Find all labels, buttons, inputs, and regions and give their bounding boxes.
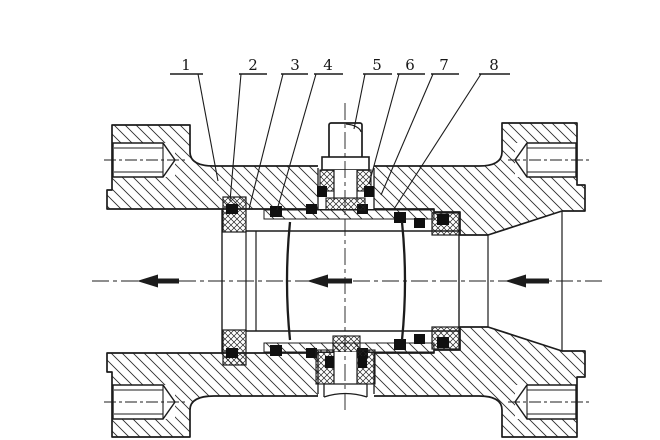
callout-number-3: 3 (290, 56, 300, 74)
trunnion-seal-right (358, 356, 367, 368)
callout-number-6: 6 (405, 56, 415, 74)
seat-carrier-plate-top (264, 210, 434, 219)
stem-packing-left (317, 186, 327, 197)
callout-number-1: 1 (181, 56, 191, 74)
callout-number-2: 2 (248, 56, 258, 74)
technical-drawing-canvas: 12345678 (0, 0, 660, 440)
callout-number-8: 8 (489, 56, 499, 74)
seat-seal-left-top (226, 204, 238, 214)
ball-valve-cross-section: 12345678 (0, 0, 660, 440)
stem-shaft (329, 123, 362, 158)
stem-packing-right (364, 186, 374, 197)
trunnion-assembly (316, 350, 375, 397)
bottom-plug (324, 384, 367, 397)
seat-seal-right-bottom (437, 337, 449, 348)
callout-number-4: 4 (323, 56, 333, 74)
callout-number-5: 5 (372, 56, 382, 74)
bolt-hole-top-left (113, 143, 175, 177)
trunnion-seal-left (325, 356, 334, 368)
seat-seal-left-bottom (226, 348, 238, 358)
callout-number-7: 7 (439, 56, 449, 74)
stem-collar (322, 157, 369, 170)
seat-seal-right-top (437, 214, 449, 225)
ball-bottom-boss (333, 336, 360, 352)
bolt-hole-bottom-left (113, 385, 175, 419)
stem-bottom-flange (326, 198, 365, 210)
